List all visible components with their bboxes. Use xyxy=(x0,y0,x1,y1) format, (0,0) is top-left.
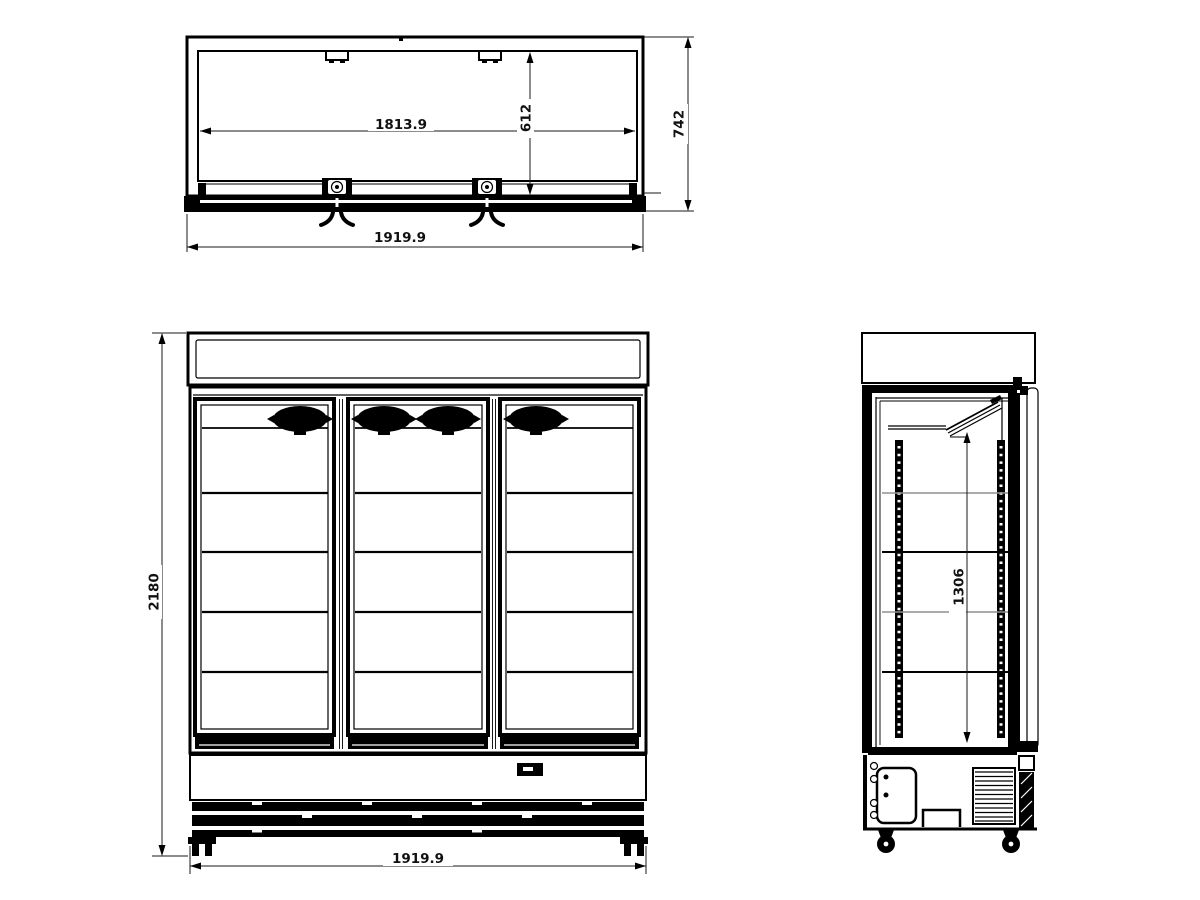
dim-label-top-inner-width: 1813.9 xyxy=(375,117,427,133)
caster-side-left xyxy=(877,830,895,853)
door-bottom-side xyxy=(1008,741,1038,752)
machine-compartment xyxy=(863,755,1037,830)
door-front-bar-groove xyxy=(200,200,632,203)
glass-door-3 xyxy=(500,399,639,749)
dim-label-top-overall-depth: 742 xyxy=(672,110,688,138)
back-wall xyxy=(862,391,872,753)
rear-column xyxy=(1019,756,1034,829)
glass-door-1 xyxy=(195,399,334,749)
dim-top-overall-width: 1919.9 xyxy=(187,214,643,252)
canopy xyxy=(188,333,648,385)
refrigerator-drawing-svg: 1813.9 612 742 xyxy=(0,0,1200,900)
center-tick xyxy=(399,38,403,41)
front-view: 2180 1919.9 xyxy=(145,333,648,874)
technical-drawing-canvas: 1813.9 612 742 xyxy=(0,0,1200,900)
dim-label-front-overall-width: 1919.9 xyxy=(392,851,444,867)
door-bottom-rail xyxy=(195,735,334,749)
door-bottom-rail xyxy=(348,735,488,749)
base-bracket xyxy=(923,810,960,827)
kick-panel xyxy=(190,755,646,800)
compressor xyxy=(871,763,917,824)
caster-front-right xyxy=(620,837,648,856)
dim-label-top-inner-depth: 612 xyxy=(519,104,535,132)
louver-grille xyxy=(192,802,644,837)
canopy-side xyxy=(862,333,1035,383)
top-frame xyxy=(862,385,1017,393)
dim-label-top-overall-width: 1919.9 xyxy=(374,230,426,246)
dim-label-front-overall-height: 2180 xyxy=(147,573,163,611)
dim-top-overall-depth: 742 xyxy=(644,37,694,211)
door-front-bar xyxy=(184,196,646,212)
condenser-coil xyxy=(973,768,1015,824)
top-view: 1813.9 612 742 xyxy=(184,37,694,252)
glass-door-side xyxy=(1008,386,1038,748)
dim-front-overall-height: 2180 xyxy=(145,333,188,856)
dim-front-overall-width: 1919.9 xyxy=(190,846,646,874)
glass-door-2 xyxy=(348,399,488,749)
side-view: 1306 xyxy=(862,333,1038,853)
shelf-pilaster xyxy=(997,440,1005,738)
door-bottom-rail xyxy=(500,735,639,749)
dim-side-interior-height: 1306 xyxy=(949,432,971,743)
cabinet-floor xyxy=(868,747,1017,755)
brand-badge xyxy=(517,763,543,776)
dim-label-side-interior-height: 1306 xyxy=(952,568,968,606)
shelf-pilaster xyxy=(895,440,903,738)
caster-front-left xyxy=(188,837,216,856)
caster-side-right xyxy=(1002,830,1020,853)
